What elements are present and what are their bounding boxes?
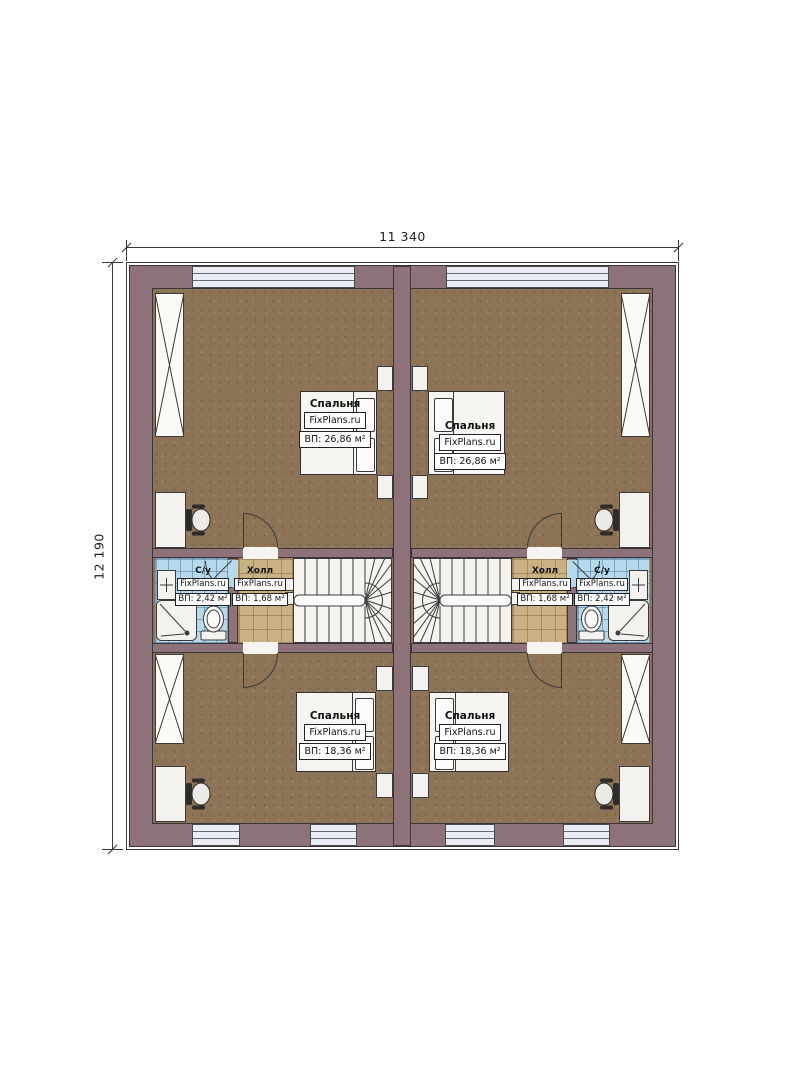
watermark: FixPlans.ru — [439, 434, 500, 451]
door-leaf — [561, 653, 562, 688]
room-label-bedroom-bottom-left: Спальня FixPlans.ru ВП: 18,36 м² — [302, 710, 368, 760]
room-label-bathroom-right: С/у FixPlans.ru ВП: 2,42 м² — [575, 566, 629, 606]
window — [446, 266, 609, 288]
room-area: ВП: 26,86 м² — [299, 431, 370, 448]
dimension-width-line — [126, 247, 679, 248]
wardrobe — [621, 293, 650, 437]
room-name: Холл — [532, 566, 558, 576]
nightstand — [412, 475, 428, 499]
dimension-width-label: 11 340 — [126, 229, 679, 244]
window — [563, 824, 610, 846]
watermark: FixPlans.ru — [576, 578, 628, 591]
room-label-bathroom-left: С/у FixPlans.ru ВП: 2,42 м² — [176, 566, 230, 606]
room-name: С/у — [195, 566, 211, 576]
room-label-bedroom-top-right: Спальня FixPlans.ru ВП: 26,86 м² — [437, 420, 503, 470]
office-chair — [594, 776, 620, 812]
floor-plan-sheet: 11 340 12 190 — [0, 0, 792, 1080]
nightstand — [377, 366, 393, 391]
office-chair — [594, 502, 620, 538]
desk — [619, 766, 650, 822]
door-leaf — [243, 513, 244, 548]
party-wall — [393, 266, 411, 846]
room-area: ВП: 2,42 м² — [574, 593, 629, 606]
watermark: FixPlans.ru — [439, 724, 500, 741]
extension-line — [126, 240, 127, 261]
room-area: ВП: 1,68 м² — [232, 593, 287, 606]
wardrobe — [155, 654, 184, 744]
watermark: FixPlans.ru — [304, 412, 365, 429]
wardrobe — [155, 293, 184, 437]
dimension-height-label: 12 190 — [92, 527, 107, 587]
toilet — [578, 604, 605, 641]
sink — [157, 570, 176, 600]
office-chair — [185, 502, 211, 538]
nightstand — [376, 666, 393, 691]
room-name: Спальня — [445, 420, 495, 432]
room-area: ВП: 18,36 м² — [434, 743, 505, 760]
room-area: ВП: 2,42 м² — [175, 593, 230, 606]
room-label-bedroom-top-left: Спальня FixPlans.ru ВП: 26,86 м² — [302, 398, 368, 448]
room-name: Холл — [247, 566, 273, 576]
door-leaf — [243, 653, 244, 688]
doorway — [527, 547, 562, 559]
desk — [619, 492, 650, 548]
sink — [629, 570, 648, 600]
room-area: ВП: 18,36 м² — [299, 743, 370, 760]
window — [192, 824, 240, 846]
window — [310, 824, 357, 846]
watermark: FixPlans.ru — [519, 578, 571, 591]
room-name: Спальня — [310, 710, 360, 722]
door-leaf — [561, 513, 562, 548]
window — [192, 266, 355, 288]
room-area: ВП: 1,68 м² — [517, 593, 572, 606]
shower — [156, 600, 197, 641]
nightstand — [412, 773, 429, 798]
room-name: Спальня — [445, 710, 495, 722]
desk — [155, 766, 186, 822]
nightstand — [376, 773, 393, 798]
nightstand — [377, 475, 393, 499]
nightstand — [412, 366, 428, 391]
nightstand — [412, 666, 429, 691]
watermark: FixPlans.ru — [177, 578, 229, 591]
room-name: Спальня — [310, 398, 360, 410]
room-area: ВП: 26,86 м² — [434, 453, 505, 470]
watermark: FixPlans.ru — [234, 578, 286, 591]
watermark: FixPlans.ru — [304, 724, 365, 741]
extension-line — [678, 240, 679, 261]
office-chair — [185, 776, 211, 812]
shower — [608, 600, 649, 641]
room-label-hall-right: Холл FixPlans.ru ВП: 1,68 м² — [518, 566, 572, 606]
room-label-bedroom-bottom-right: Спальня FixPlans.ru ВП: 18,36 м² — [437, 710, 503, 760]
building-plan: Спальня FixPlans.ru ВП: 26,86 м² Спальня… — [126, 262, 679, 850]
room-name: С/у — [594, 566, 610, 576]
toilet — [200, 604, 227, 641]
dimension-height-line — [112, 262, 113, 850]
window — [445, 824, 495, 846]
room-label-hall-left: Холл FixPlans.ru ВП: 1,68 м² — [233, 566, 287, 606]
wardrobe — [621, 654, 650, 744]
desk — [155, 492, 186, 548]
doorway — [243, 547, 278, 559]
